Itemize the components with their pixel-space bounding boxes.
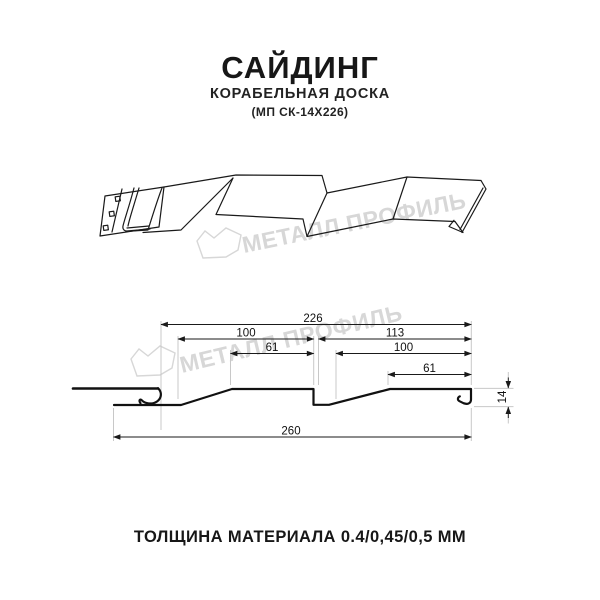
dim-right-flat-61: 61 — [423, 363, 436, 375]
product-subtitle: КОРАБЕЛЬНАЯ ДОСКА — [0, 86, 600, 102]
section-profile — [73, 388, 471, 405]
dim-left-panel: 100 — [236, 327, 255, 339]
thickness-note: ТОЛЩИНА МАТЕРИАЛА 0.4/0,45/0,5 ММ — [0, 528, 600, 547]
nail-hole — [103, 225, 108, 230]
dim-right-flat-100: 100 — [394, 342, 413, 354]
product-model: (МП СК-14Х226) — [0, 105, 600, 119]
dim-height: 14 — [497, 390, 509, 403]
dim-right-panel: 113 — [386, 327, 404, 339]
dim-overall: 260 — [281, 425, 300, 437]
watermark-text: МЕТАЛЛ ПРОФИЛЬ — [240, 187, 469, 258]
metal-profile-logo-icon — [197, 228, 241, 258]
nail-hole — [115, 196, 120, 201]
technical-drawing: МЕТАЛЛ ПРОФИЛЬ МЕТАЛЛ ПРОФИЛЬ — [0, 140, 600, 470]
watermark-upper: МЕТАЛЛ ПРОФИЛЬ — [197, 187, 468, 258]
left-lock-curl — [140, 388, 161, 403]
dim-width-total: 226 — [303, 313, 322, 325]
page-title: САЙДИНГ — [0, 50, 600, 86]
dim-left-flat: 61 — [266, 342, 279, 354]
metal-profile-logo-icon — [131, 346, 175, 376]
nail-hole — [109, 211, 114, 216]
